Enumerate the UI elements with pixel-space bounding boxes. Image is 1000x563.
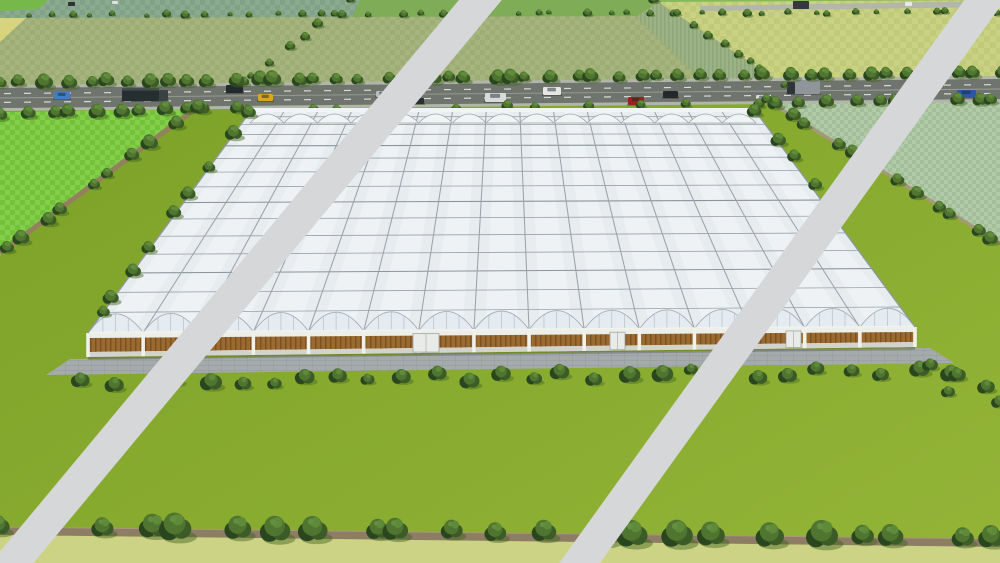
wall-pilaster xyxy=(307,331,311,354)
vehicle-car xyxy=(662,91,679,99)
vehicle-car xyxy=(257,94,274,102)
distant-vehicle xyxy=(905,2,912,6)
distant-vehicle xyxy=(793,1,809,9)
wall-pilaster xyxy=(638,329,642,350)
wall-pilaster xyxy=(693,329,697,350)
wall-pilaster xyxy=(362,331,366,354)
wall-pilaster xyxy=(913,327,917,347)
vehicle-pickup xyxy=(484,93,507,103)
vehicle-van xyxy=(542,87,562,96)
wall-pilaster xyxy=(141,333,145,357)
greenhouse-door xyxy=(413,334,439,352)
greenhouse-aerial-render xyxy=(0,0,1000,563)
greenhouse-door xyxy=(786,331,801,348)
distant-vehicle xyxy=(112,1,118,4)
wall-pilaster xyxy=(582,329,586,351)
wall-pilaster xyxy=(252,332,256,355)
wall-pilaster xyxy=(472,330,476,352)
render-canvas xyxy=(0,0,1000,563)
wall-pilaster xyxy=(803,328,807,349)
wall-pilaster xyxy=(86,333,90,357)
vehicle-truck xyxy=(121,88,169,102)
wall-pilaster xyxy=(527,330,531,352)
wall-pilaster xyxy=(858,327,862,347)
greenhouse-door xyxy=(610,332,625,349)
distant-vehicle xyxy=(68,2,75,6)
vehicle-car xyxy=(53,92,71,100)
